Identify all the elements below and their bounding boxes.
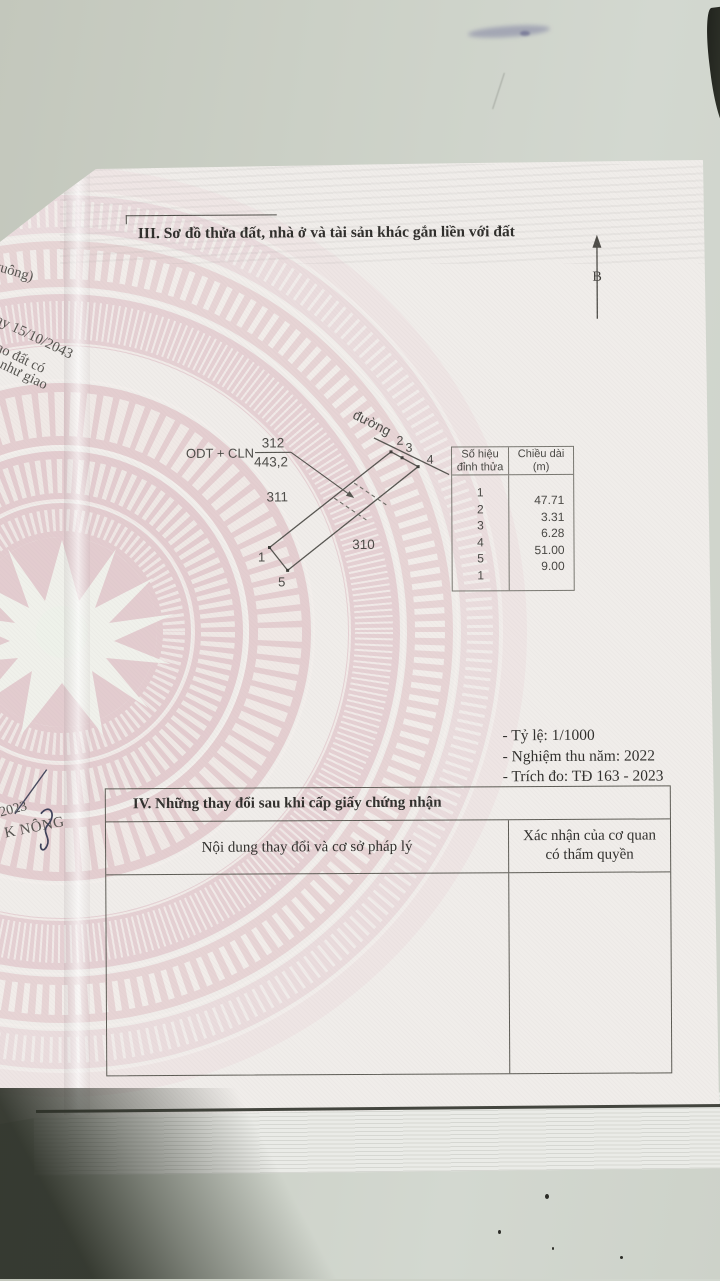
corner-shadow bbox=[0, 1088, 480, 1279]
road-label: đường bbox=[350, 407, 393, 439]
length-cell: 47.71 bbox=[509, 492, 564, 509]
vertex-label-2: 2 bbox=[396, 434, 403, 448]
desk-speck bbox=[552, 1247, 554, 1250]
note-acceptance-year: - Nghiệm thu năm: 2022 bbox=[503, 746, 688, 767]
desk-speck bbox=[498, 1230, 501, 1234]
neighbor-plot-311: 311 bbox=[266, 489, 288, 504]
length-col-header: Chiều dài (m) bbox=[509, 447, 573, 474]
leader-arrowhead bbox=[346, 491, 354, 498]
vertex-cell: 3 bbox=[452, 517, 508, 534]
section-iv-body-row bbox=[106, 872, 671, 1075]
length-cell: 51.00 bbox=[509, 542, 564, 559]
section-iv-table: IV. Những thay đổi sau khi cấp giấy chứn… bbox=[105, 785, 673, 1076]
land-use-code-label: ODT + CLN bbox=[186, 446, 254, 461]
vertex-cell: 1 bbox=[453, 567, 509, 584]
section-iv-title: IV. Những thay đổi sau khi cấp giấy chứn… bbox=[106, 786, 670, 822]
length-cell: 9.00 bbox=[510, 558, 565, 575]
vertex-col-header-line1: Số hiệu bbox=[452, 448, 508, 461]
change-content-header: Nội dung thay đổi và cơ sở pháp lý bbox=[106, 820, 509, 874]
neighbor-plot-310: 310 bbox=[352, 537, 375, 552]
length-cell: 6.28 bbox=[509, 525, 564, 542]
vertex-length-table: Số hiệu đỉnh thửa Chiều dài (m) 1 2 3 4 … bbox=[451, 446, 575, 592]
ink-smudge bbox=[468, 23, 551, 40]
vertex-table-body: 1 2 3 4 5 1 47.71 3.31 6.28 51.00 9.00 bbox=[452, 475, 574, 591]
plot-boundary bbox=[269, 452, 419, 571]
vertex-cell: 4 bbox=[452, 534, 508, 551]
change-content-cell bbox=[106, 873, 510, 1075]
desk-speck bbox=[545, 1194, 549, 1199]
cadastral-diagram: 312 443,2 ODT + CLN đường 311 310 1 2 3 … bbox=[169, 395, 470, 597]
section-iv-header-row: Nội dung thay đổi và cơ sở pháp lý Xác n… bbox=[106, 819, 670, 875]
vertex-numbers-column: 1 2 3 4 5 1 bbox=[452, 475, 510, 590]
vertex-label-4: 4 bbox=[427, 453, 434, 467]
vertex-table-header: Số hiệu đỉnh thửa Chiều dài (m) bbox=[452, 447, 573, 476]
vertex-dots bbox=[268, 450, 421, 572]
signature-flourish bbox=[11, 762, 72, 862]
map-notes: - Tỷ lệ: 1/1000 - Nghiệm thu năm: 2022 -… bbox=[502, 725, 687, 787]
length-cell: 3.31 bbox=[509, 509, 564, 526]
plot-number-label: 312 bbox=[262, 435, 285, 450]
photo-of-land-certificate: { "document": { "section_iii": { "title"… bbox=[0, 0, 720, 1279]
label-leader-line bbox=[291, 452, 350, 495]
vertex-label-5: 5 bbox=[278, 574, 285, 589]
dark-object-edge bbox=[703, 7, 720, 131]
authority-confirmation-header: Xác nhận của cơ quan có thẩm quyền bbox=[509, 819, 670, 872]
desk-speck bbox=[620, 1256, 623, 1259]
length-col-header-line1: Chiều dài bbox=[509, 448, 573, 461]
length-col-header-line2: (m) bbox=[509, 460, 573, 473]
vertex-label-1: 1 bbox=[258, 549, 265, 564]
lengths-column: 47.71 3.31 6.28 51.00 9.00 bbox=[509, 475, 574, 590]
vertex-col-header-line2: đỉnh thửa bbox=[452, 461, 508, 474]
north-label: B bbox=[592, 270, 601, 285]
north-arrow: B bbox=[584, 235, 610, 323]
vertex-col-header: Số hiệu đỉnh thửa bbox=[452, 447, 509, 474]
section-iii-title: III. Sơ đồ thửa đất, nhà ở và tài sản kh… bbox=[138, 223, 628, 244]
plot-area-label: 443,2 bbox=[254, 454, 288, 469]
vertex-cell: 1 bbox=[452, 484, 508, 501]
margin-fragment: vuông) bbox=[0, 258, 35, 286]
authority-confirmation-cell bbox=[509, 872, 671, 1073]
vertex-cell: 2 bbox=[452, 501, 508, 518]
desk-scratch bbox=[492, 73, 505, 109]
corner-bracket-mark bbox=[126, 214, 277, 224]
vertex-label-3: 3 bbox=[405, 441, 412, 455]
note-scale: - Tỷ lệ: 1/1000 bbox=[502, 725, 687, 746]
ink-dot bbox=[520, 31, 530, 36]
vertex-cell: 5 bbox=[453, 551, 509, 568]
